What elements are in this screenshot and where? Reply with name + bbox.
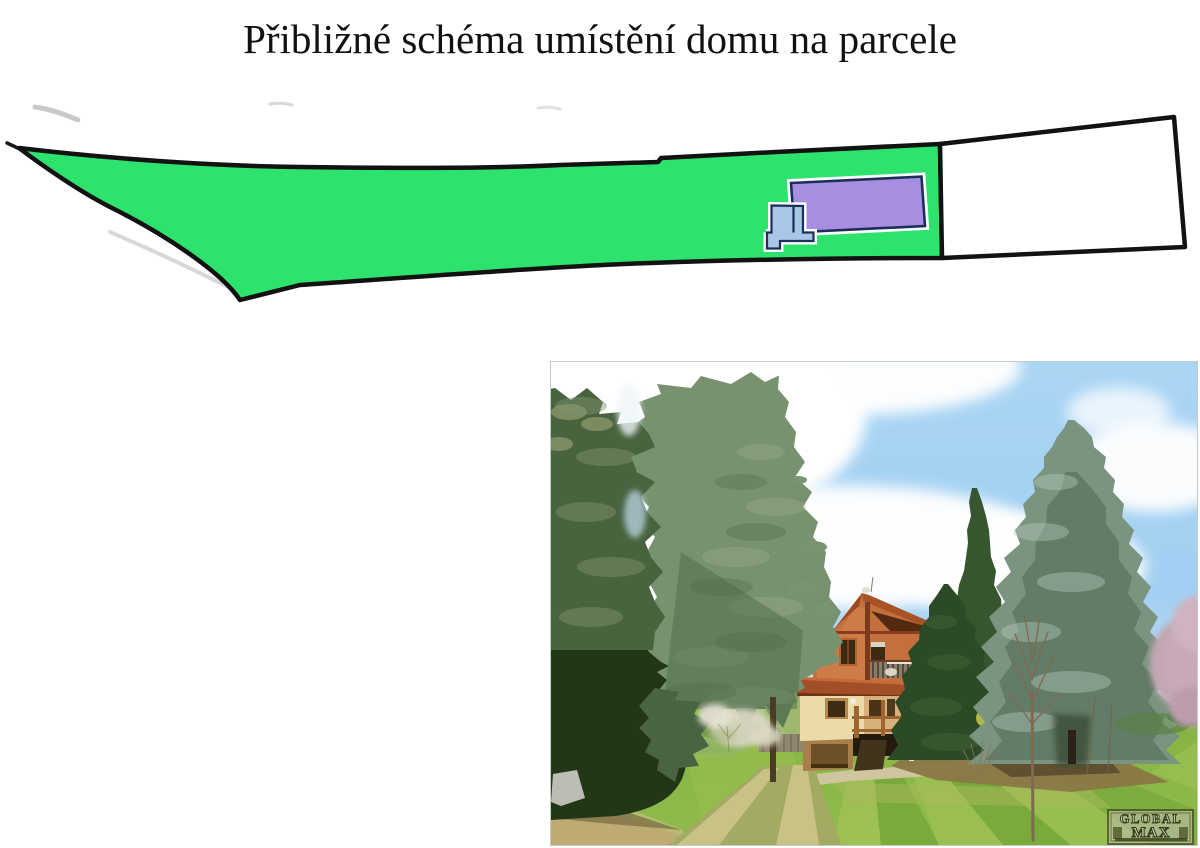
svg-text:GLOBAL: GLOBAL xyxy=(1120,812,1183,826)
